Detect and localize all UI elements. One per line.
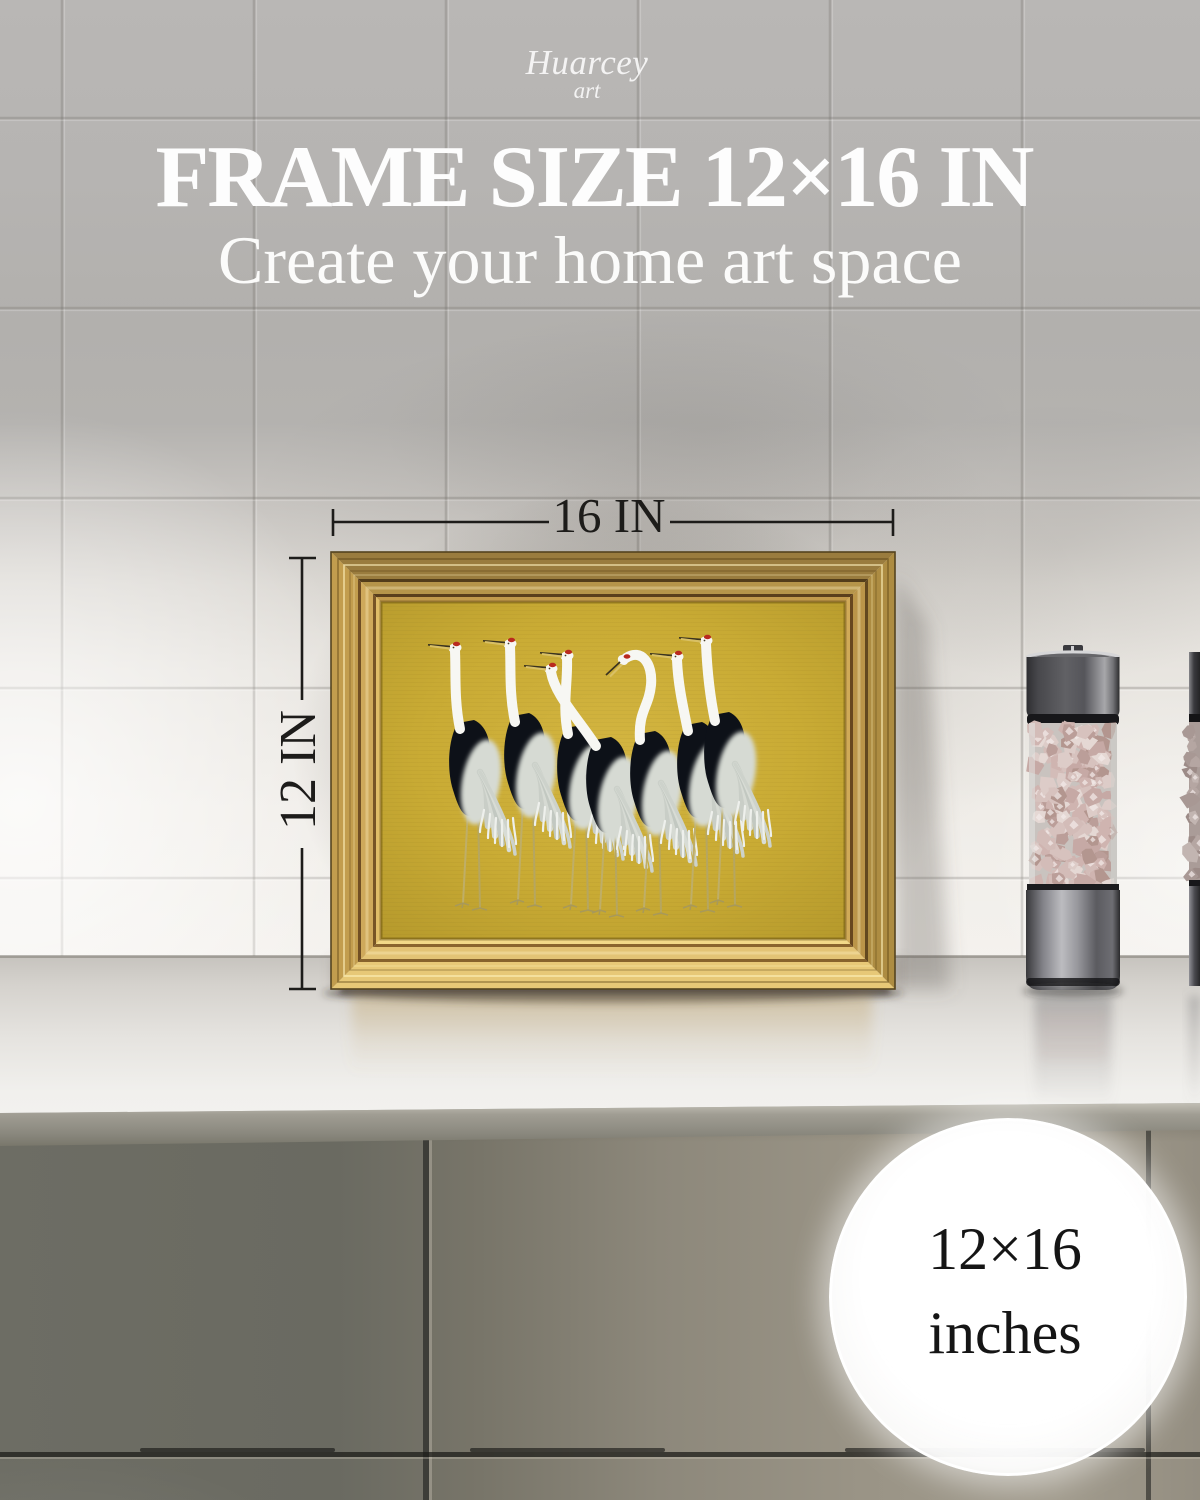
svg-text:12 IN: 12 IN [270, 710, 327, 830]
svg-text:16 IN: 16 IN [553, 488, 666, 543]
